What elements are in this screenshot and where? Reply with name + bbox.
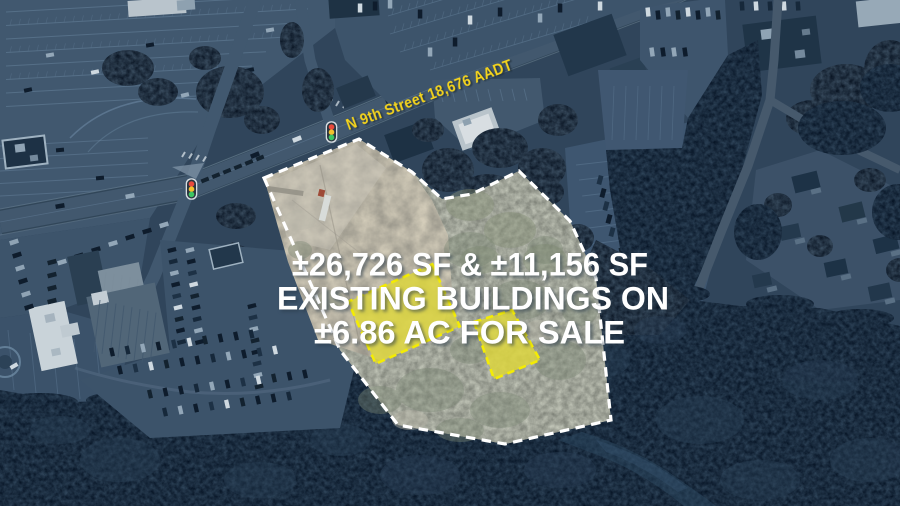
svg-text:±26,726 SF & ±11,156 SF: ±26,726 SF & ±11,156 SF — [292, 247, 648, 283]
svg-text:±6.86 AC FOR SALE: ±6.86 AC FOR SALE — [314, 315, 625, 351]
svg-text:EXISTING BUILDINGS ON: EXISTING BUILDINGS ON — [277, 281, 669, 317]
